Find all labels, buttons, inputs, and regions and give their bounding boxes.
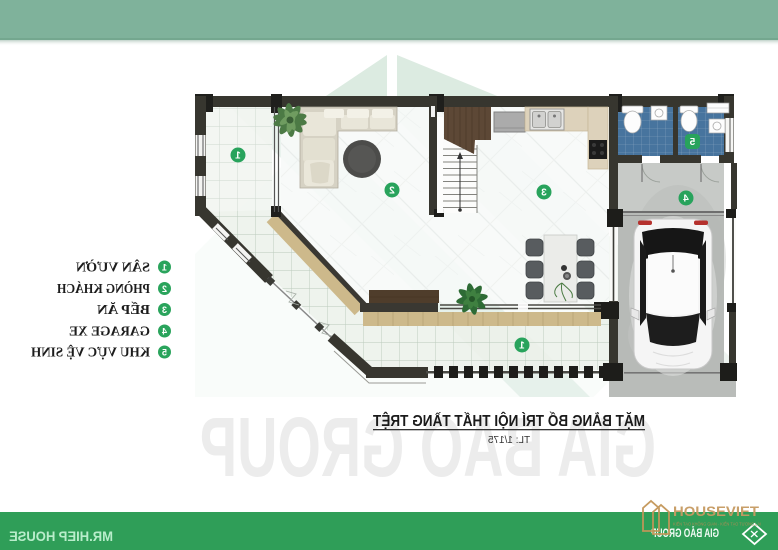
svg-text:4: 4 xyxy=(683,194,689,205)
svg-text:HOUSEVIET: HOUSEVIET xyxy=(673,503,759,519)
svg-text:5: 5 xyxy=(162,348,167,358)
svg-text:BẾP ĂN: BẾP ĂN xyxy=(97,301,150,318)
svg-text:SÂN VƯỜN: SÂN VƯỜN xyxy=(76,259,150,276)
svg-text:2: 2 xyxy=(162,284,167,294)
svg-text:KIẾN TẠO KHÔNG GIAN - KIẾN TẠO: KIẾN TẠO KHÔNG GIAN - KIẾN TẠO TƯƠNG LAI xyxy=(673,521,761,528)
svg-text:1: 1 xyxy=(162,263,167,273)
svg-text:KHU VỰC VỆ SINH: KHU VỰC VỆ SINH xyxy=(31,344,150,361)
svg-text:MR.HIEP HOUSE: MR.HIEP HOUSE xyxy=(9,528,113,544)
svg-text:2: 2 xyxy=(389,186,395,197)
svg-text:TL: 1/175: TL: 1/175 xyxy=(487,435,530,446)
svg-text:1: 1 xyxy=(519,341,525,352)
svg-text:PHÒNG KHÁCH: PHÒNG KHÁCH xyxy=(57,280,150,297)
svg-text:5: 5 xyxy=(689,137,695,148)
svg-text:1: 1 xyxy=(235,151,241,162)
svg-text:GARAGE XE: GARAGE XE xyxy=(69,325,150,340)
svg-text:3: 3 xyxy=(162,305,167,315)
svg-text:4: 4 xyxy=(162,327,167,337)
svg-text:3: 3 xyxy=(541,188,547,199)
svg-text:MẶT BẰNG BỐ TRÍ NỘI THẤT TẦNG: MẶT BẰNG BỐ TRÍ NỘI THẤT TẦNG TRỆT xyxy=(373,410,645,430)
